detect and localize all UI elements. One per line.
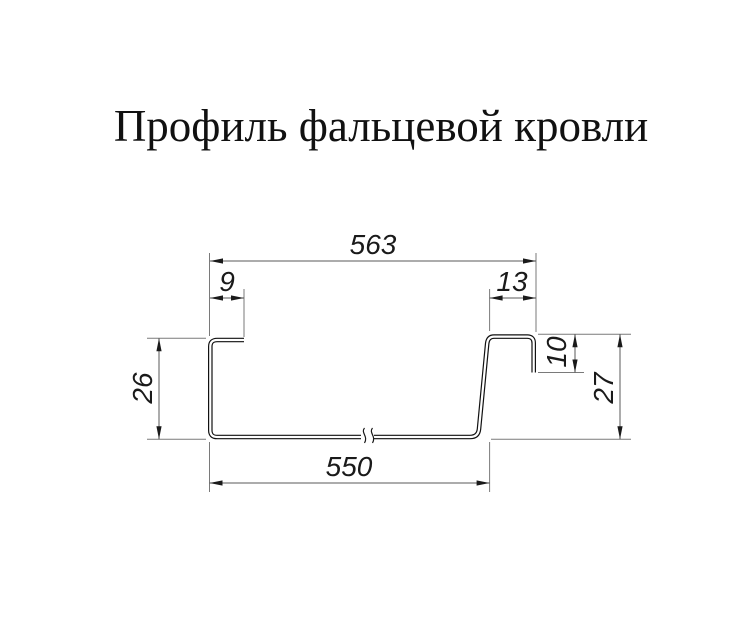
- profile-sheet-outer-stroke: [210, 337, 533, 437]
- dimension-arrowhead: [572, 360, 577, 373]
- dimension-right-height: 27: [588, 334, 623, 439]
- dimension-bottom-width: 550: [210, 451, 490, 486]
- dimension-arrowhead: [617, 334, 622, 347]
- page-title: Профиль фальцевой кровли: [114, 101, 648, 151]
- profile-outline: [210, 337, 533, 443]
- dimension-arrowhead: [523, 258, 536, 263]
- dimension-arrowhead: [156, 426, 161, 439]
- dimension-label-seam-hook-width: 13: [496, 266, 528, 297]
- dimension-arrowhead: [210, 258, 223, 263]
- dimension-label-left-height: 26: [127, 372, 158, 405]
- dimension-label-bottom-width: 550: [326, 451, 373, 482]
- dimension-label-seam-hook-drop: 10: [541, 336, 572, 368]
- dimension-label-overall-width: 563: [350, 229, 397, 260]
- dimension-label-left-flange: 9: [219, 266, 235, 297]
- dimension-overall-width: 563: [210, 229, 536, 264]
- dimension-left-height: 26: [127, 338, 162, 439]
- dimension-seam-hook-drop: 10: [541, 334, 578, 372]
- dimension-arrowhead: [156, 338, 161, 351]
- technical-drawing-canvas: Профиль фальцевой кровли 563: [0, 0, 742, 634]
- dimension-seam-hook-width: 13: [490, 266, 536, 301]
- dimension-arrowhead: [572, 334, 577, 347]
- dimension-label-right-height: 27: [588, 371, 619, 405]
- dimension-arrowhead: [617, 426, 622, 439]
- break-mark: [361, 428, 374, 443]
- dimension-arrowhead: [210, 480, 223, 485]
- dimension-left-flange: 9: [210, 266, 244, 301]
- dimension-arrowhead: [477, 480, 490, 485]
- drawing-page: Профиль фальцевой кровли 563: [0, 0, 742, 634]
